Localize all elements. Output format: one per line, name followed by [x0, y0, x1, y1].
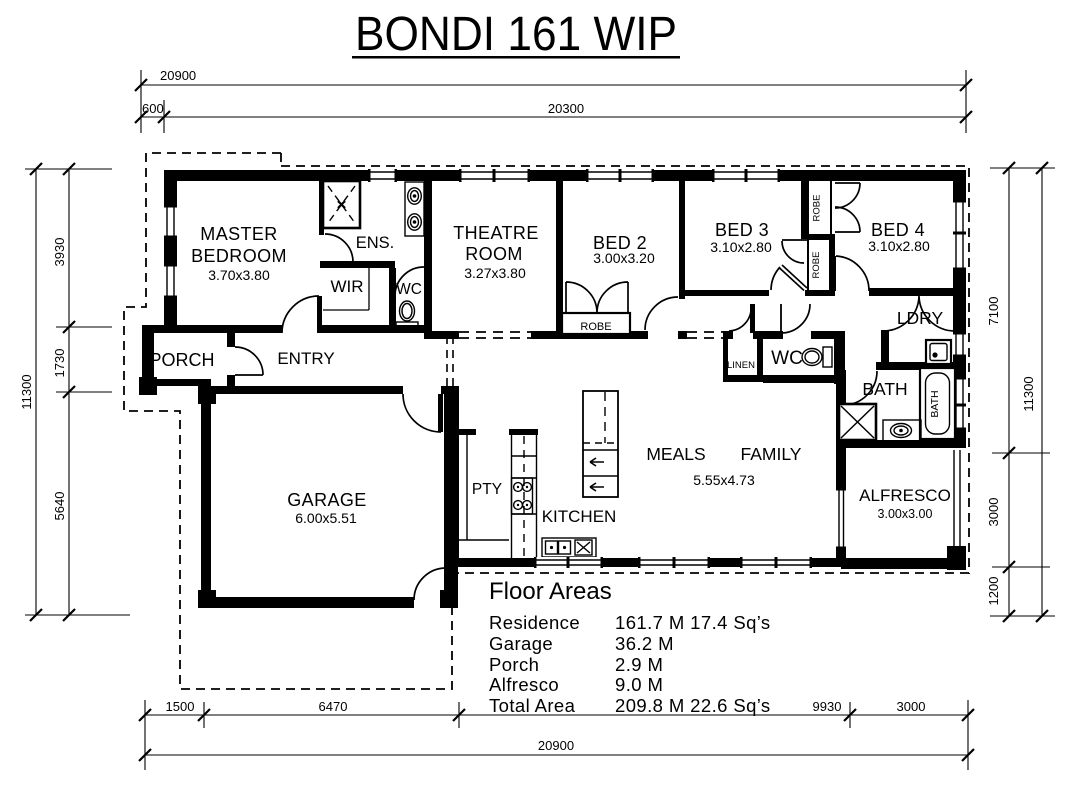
- svg-text:6.00x5.51: 6.00x5.51: [295, 510, 357, 526]
- svg-text:3.10x2.80: 3.10x2.80: [868, 238, 930, 254]
- svg-text:Total Area: Total Area: [489, 695, 576, 716]
- svg-text:Garage: Garage: [489, 633, 553, 654]
- svg-text:36.2 M: 36.2 M: [615, 633, 674, 654]
- svg-text:11300: 11300: [1021, 376, 1036, 411]
- svg-text:PTY: PTY: [472, 481, 502, 498]
- svg-text:7100: 7100: [986, 297, 1001, 326]
- svg-text:LINEN: LINEN: [727, 360, 755, 371]
- svg-text:WC: WC: [771, 348, 803, 369]
- svg-text:ALFRESCO: ALFRESCO: [859, 486, 951, 505]
- svg-text:20900: 20900: [538, 738, 574, 753]
- svg-text:3.27x3.80: 3.27x3.80: [464, 265, 526, 281]
- svg-text:BATH: BATH: [929, 390, 941, 417]
- svg-text:ROBE: ROBE: [580, 321, 611, 333]
- svg-text:MEALS: MEALS: [646, 444, 705, 464]
- svg-text:20900: 20900: [160, 68, 196, 83]
- svg-text:3930: 3930: [52, 238, 67, 267]
- svg-text:BATH: BATH: [862, 379, 907, 399]
- svg-text:2.9 M: 2.9 M: [615, 654, 663, 675]
- svg-text:5.55x4.73: 5.55x4.73: [693, 472, 755, 488]
- svg-text:PORCH: PORCH: [149, 350, 214, 370]
- svg-text:1500: 1500: [166, 699, 195, 714]
- svg-text:Floor Areas: Floor Areas: [489, 578, 612, 605]
- svg-text:THEATRE: THEATRE: [453, 223, 538, 243]
- svg-text:BED 3: BED 3: [715, 220, 769, 240]
- svg-text:BEDROOM: BEDROOM: [191, 246, 287, 266]
- svg-text:MASTER: MASTER: [200, 224, 277, 244]
- svg-text:9.0 M: 9.0 M: [615, 674, 663, 695]
- svg-text:FAMILY: FAMILY: [741, 444, 802, 464]
- svg-text:1200: 1200: [986, 577, 1001, 606]
- svg-text:3.70x3.80: 3.70x3.80: [208, 267, 270, 283]
- svg-text:3.00x3.00: 3.00x3.00: [878, 507, 933, 521]
- svg-text:11300: 11300: [19, 374, 34, 409]
- svg-text:Porch: Porch: [489, 654, 539, 675]
- svg-text:ENS.: ENS.: [356, 234, 395, 252]
- svg-text:20300: 20300: [548, 101, 584, 116]
- svg-text:6470: 6470: [319, 699, 348, 714]
- svg-text:WC: WC: [396, 281, 422, 298]
- svg-text:161.7 M 17.4 Sq’s: 161.7 M 17.4 Sq’s: [615, 612, 771, 633]
- svg-text:600: 600: [142, 101, 164, 116]
- svg-text:3000: 3000: [897, 699, 926, 714]
- svg-text:KITCHEN: KITCHEN: [542, 507, 617, 526]
- svg-text:Alfresco: Alfresco: [489, 674, 559, 695]
- svg-text:Residence: Residence: [489, 612, 580, 633]
- svg-text:ROBE: ROBE: [812, 195, 823, 222]
- svg-text:3.00x3.20: 3.00x3.20: [593, 250, 655, 266]
- svg-text:WIR: WIR: [330, 277, 363, 296]
- svg-text:GARAGE: GARAGE: [287, 490, 366, 510]
- svg-text:3000: 3000: [986, 498, 1001, 527]
- svg-text:BED 4: BED 4: [871, 220, 925, 240]
- svg-text:209.8 M 22.6 Sq’s: 209.8 M 22.6 Sq’s: [615, 695, 771, 716]
- svg-text:3.10x2.80: 3.10x2.80: [710, 239, 772, 255]
- svg-text:9930: 9930: [813, 699, 842, 714]
- svg-text:LDRY: LDRY: [897, 308, 944, 328]
- svg-text:1730: 1730: [52, 349, 67, 378]
- svg-text:ENTRY: ENTRY: [277, 349, 334, 368]
- svg-text:ROOM: ROOM: [465, 244, 523, 264]
- svg-text:BONDI 161 WIP: BONDI 161 WIP: [355, 8, 677, 61]
- svg-text:5640: 5640: [52, 492, 67, 521]
- svg-text:ROBE: ROBE: [811, 252, 822, 279]
